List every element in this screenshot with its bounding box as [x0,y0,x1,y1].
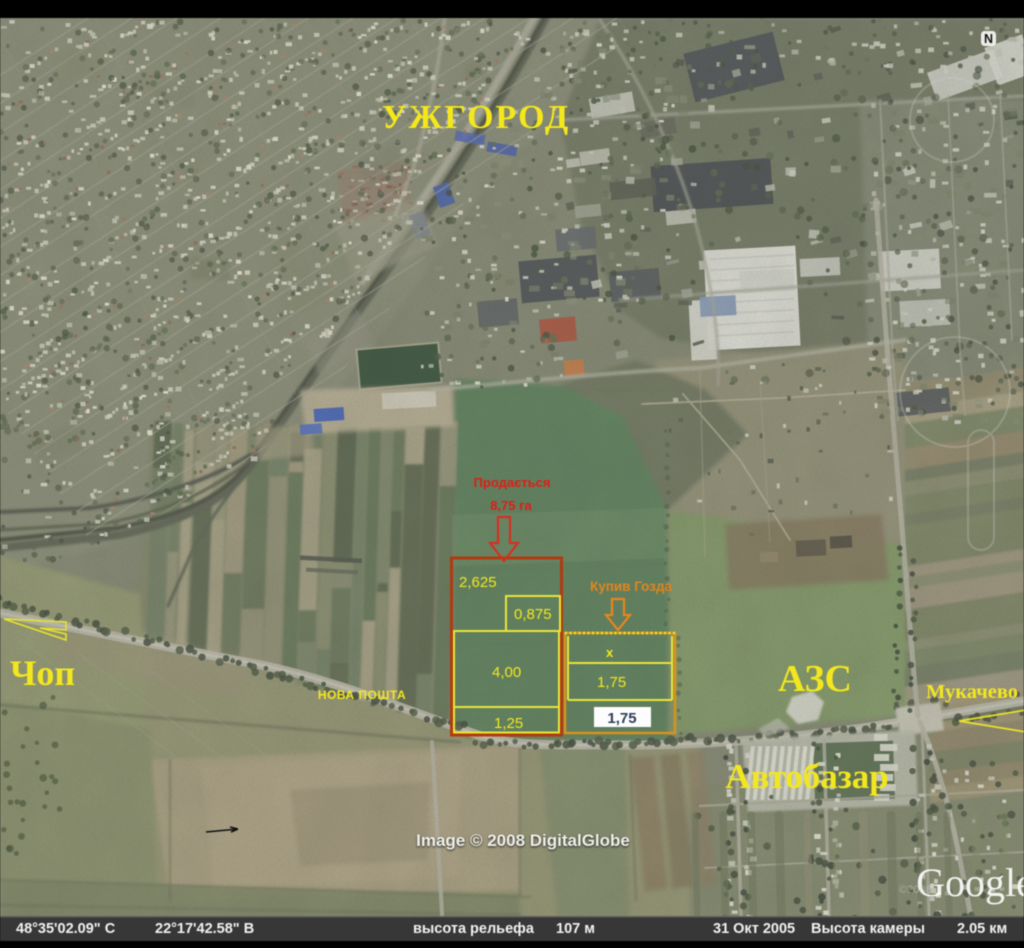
svg-text:1,25: 1,25 [494,715,523,732]
svg-text:107 м: 107 м [556,921,595,937]
svg-text:высота рельефа: высота рельефа [413,921,535,937]
svg-text:Чоп: Чоп [10,653,75,693]
svg-text:8,75 га: 8,75 га [490,498,532,513]
svg-text:АЗС: АЗС [778,658,852,700]
svg-text:2,625: 2,625 [459,574,497,591]
svg-text:Продається: Продається [474,475,551,490]
svg-text:x: x [606,645,614,660]
svg-text:Автобазар: Автобазар [725,757,889,796]
svg-text:1,75: 1,75 [607,710,636,727]
svg-text:31 Окт 2005: 31 Окт 2005 [713,921,795,937]
svg-text:УЖГОРОД: УЖГОРОД [382,99,571,136]
svg-text:0,875: 0,875 [514,606,552,623]
svg-text:Мукачево: Мукачево [926,681,1018,703]
svg-text:22°17'42.58" В: 22°17'42.58" В [155,921,254,937]
svg-text:Высота камеры: Высота камеры [811,921,925,937]
svg-text:Image © 2008 DigitalGlobe: Image © 2008 DigitalGlobe [416,831,630,850]
svg-text:Google: Google [916,860,1024,905]
svg-text:48°35'02.09" С: 48°35'02.09" С [16,921,116,937]
svg-text:2.05 км: 2.05 км [957,921,1007,937]
svg-text:Купив Гозда: Купив Гозда [590,579,673,594]
svg-text:©2008: ©2008 [899,884,932,896]
svg-text:НОВА ПОШТА: НОВА ПОШТА [318,688,406,702]
svg-text:1,75: 1,75 [597,674,626,691]
svg-text:N: N [984,32,993,46]
svg-text:4,00: 4,00 [492,664,521,681]
